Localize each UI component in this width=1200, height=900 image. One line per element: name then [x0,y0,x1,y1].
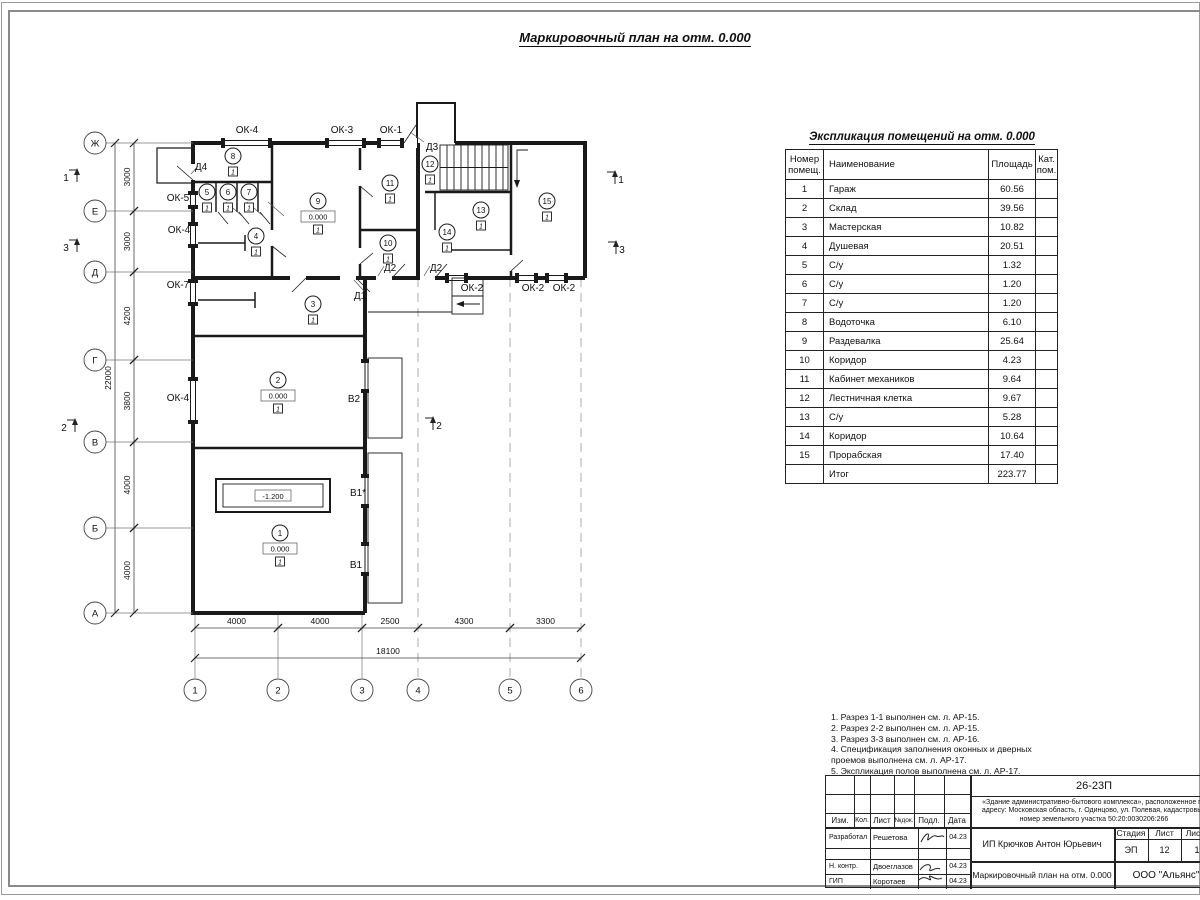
general-notes: 1. Разрез 1-1 выполнен см. л. АР-15.2. Р… [831,712,1032,777]
schedule-cell [1036,294,1058,313]
opening-label: В1* [350,488,366,499]
schedule-cell: 1 [786,180,824,199]
schedule-cell: 14 [786,427,824,446]
note-line: проемов выполнена см. л. АР-17. [831,755,1032,766]
schedule-row: 4Душевая20.51 [786,237,1058,256]
axis-label: В [92,438,98,449]
col-header-num: Номер помещ. [786,150,824,180]
room-number: 6 [226,188,231,197]
room-number: 4 [254,232,259,241]
schedule-row: 5С/у1.32 [786,256,1058,275]
room-number: 3 [311,300,316,309]
dimension-value: 2500 [381,616,400,626]
tb-role-ncontrol: Н. контр. [826,859,870,874]
overall-dimension: 18100 [376,646,400,656]
col-header-area: Площадь [989,150,1036,180]
schedule-cell [1036,256,1058,275]
elevation-value: 0.000 [271,545,290,554]
schedule-cell: 9.67 [989,389,1036,408]
dimension-value: 4000 [311,616,330,626]
schedule-cell: 6 [786,275,824,294]
tb-stage-header: Стадия [1114,827,1148,839]
schedule-cell: 10.64 [989,427,1036,446]
room-number: 15 [543,197,552,206]
room-number: 12 [426,160,435,169]
opening-label: Д4 [195,162,208,173]
floor-plan: ОК-4ОК-3ОК-1Д3Д4ОК-5ОК-4ОК-7ОК-4Д2Д2Д1ОК… [20,80,680,725]
room-number: 5 [205,188,210,197]
note-line: 3. Разрез 3-3 выполнен см. л. АР-16. [831,734,1032,745]
elevation-value: 0.000 [269,392,288,401]
schedule-row: 9Раздевалка25.64 [786,332,1058,351]
floor-type-number: 1 [445,246,449,253]
schedule-row: 13С/у5.28 [786,408,1058,427]
axis-label: Г [92,356,97,367]
schedule-cell [1036,237,1058,256]
opening-label: ОК-3 [331,125,354,136]
section-arrowhead [74,168,80,175]
dimension-value: 3800 [122,391,132,410]
schedule-cell: 6.10 [989,313,1036,332]
schedule-cell: С/у [824,408,989,427]
schedule-cell [1036,351,1058,370]
porch-d4 [157,148,193,183]
section-number: 2 [61,423,67,434]
floor-type-number: 1 [247,206,251,213]
schedule-cell: Итог [824,465,989,484]
tb-company: ООО "Альянс" [1114,861,1200,889]
room-number: 7 [247,188,252,197]
schedule-cell [1036,275,1058,294]
schedule-cell [1036,332,1058,351]
schedule-cell: 10 [786,351,824,370]
opening-label: Д2 [384,263,397,274]
tb-doc-code: 26-23П [970,776,1200,796]
pit-elevation-value: -1.200 [262,492,283,501]
opening-label: ОК-2 [522,283,545,294]
dimension-value: 4300 [455,616,474,626]
drawing-title: Маркировочный план на отм. 0.000 [470,30,800,45]
section-number: 1 [63,173,69,184]
schedule-row: 12Лестничная клетка9.67 [786,389,1058,408]
schedule-row: 2Склад39.56 [786,199,1058,218]
opening-label: В1 [350,560,363,571]
opening-label: ОК-4 [167,393,190,404]
floor-type-number: 1 [276,407,280,414]
schedule-cell [1036,199,1058,218]
opening-label: ОК-4 [168,225,191,236]
opening-label: В2 [348,394,361,405]
floor-type-number: 1 [278,560,282,567]
schedule-cell: Склад [824,199,989,218]
section-arrowhead [430,416,436,423]
room-number: 1 [278,529,283,538]
schedule-cell: 8 [786,313,824,332]
tb-client: ИП Крючков Антон Юрьевич [970,827,1114,861]
schedule-cell: 1.32 [989,256,1036,275]
floor-type-number: 1 [231,170,235,177]
dimension-value: 4000 [122,475,132,494]
floor-type-number: 1 [479,224,483,231]
schedule-cell: Коридор [824,351,989,370]
schedule-cell: 9.64 [989,370,1036,389]
schedule-cell: С/у [824,275,989,294]
schedule-cell [1036,465,1058,484]
floor-type-number: 1 [388,197,392,204]
title-block: Изм. Кол. Лист №док. Подл. Дата Разработ… [825,775,1200,888]
note-line: 2. Разрез 2-2 выполнен см. л. АР-15. [831,723,1032,734]
schedule-cell: 5.28 [989,408,1036,427]
schedule-cell: Водоточка [824,313,989,332]
schedule-cell: 9 [786,332,824,351]
schedule-cell: Гараж [824,180,989,199]
section-arrowhead [613,240,619,247]
tb-name-developer: Решетова [870,827,918,848]
tb-sheet-header: Лист [1148,827,1181,839]
tb-date-developer: 04.23 [946,827,970,848]
schedule-cell [1036,427,1058,446]
col-header-name: Наименование [824,150,989,180]
signature-developer [918,828,946,848]
schedule-cell: 2 [786,199,824,218]
dimension-value: 4000 [122,561,132,580]
tb-role-gip: ГИП [826,874,870,889]
elevation-value: 0.000 [309,213,328,222]
schedule-cell: 25.64 [989,332,1036,351]
schedule-cell [1036,408,1058,427]
schedule-cell: 1.20 [989,294,1036,313]
tb-name-ncontrol: Двоеглазов [870,859,918,874]
tb-col-kol: Кол. [854,813,870,827]
room-number: 11 [386,179,395,188]
axis-label: Е [92,207,98,218]
schedule-cell: 10.82 [989,218,1036,237]
schedule-cell [1036,370,1058,389]
room-number: 14 [443,228,452,237]
section-number: 2 [436,421,442,432]
schedule-cell: 7 [786,294,824,313]
note-line: 4. Спецификация заполнения оконных и две… [831,744,1032,755]
schedule-cell [1036,389,1058,408]
opening-label: ОК-7 [167,280,190,291]
section-number: 1 [618,175,624,186]
schedule-title: Экспликация помещений на отм. 0.000 [785,131,1059,143]
axis-label: А [92,609,99,620]
tb-sheets-value: 17 [1181,839,1200,861]
floor-type-number: 1 [205,206,209,213]
schedule-cell [1036,218,1058,237]
opening-label: Д2 [430,263,443,274]
schedule-cell [1036,180,1058,199]
section-number: 3 [63,243,69,254]
floor-type-number: 1 [386,257,390,264]
axis-label: 4 [415,686,420,697]
schedule-cell: Лестничная клетка [824,389,989,408]
tb-date-gip: 04.23 [946,874,970,889]
schedule-cell: Душевая [824,237,989,256]
section-arrowhead [72,418,78,425]
room-schedule: Экспликация помещений на отм. 0.000 Номе… [785,131,1059,484]
schedule-cell: С/у [824,256,989,275]
room-number: 13 [477,206,486,215]
tb-sheet-value: 12 [1148,839,1181,861]
dimension-value: 3000 [122,232,132,251]
vestibule [417,103,455,143]
tb-stage-value: ЭП [1114,839,1148,861]
tb-role-developer: Разработал [826,827,870,848]
schedule-cell [786,465,824,484]
tb-col-podl: Подл. [914,813,944,827]
drawing-sheet: Маркировочный план на отм. 0.000 [0,0,1200,900]
schedule-cell: Раздевалка [824,332,989,351]
schedule-row: Итог223.77 [786,465,1058,484]
floor-type-number: 1 [428,178,432,185]
signature-ncontrol [916,860,946,888]
axis-label: Д [92,268,99,279]
floor-type-number: 1 [311,318,315,325]
room-number: 9 [316,197,321,206]
schedule-cell: 39.56 [989,199,1036,218]
tb-project-description: «Здание административно-бытового комплек… [970,796,1200,827]
dimension-value: 3300 [536,616,555,626]
tb-col-doc: №док. [894,813,914,827]
schedule-row: 3Мастерская10.82 [786,218,1058,237]
room-number: 10 [384,239,393,248]
schedule-cell: Коридор [824,427,989,446]
opening-label: ОК-2 [461,283,484,294]
section-arrowhead [612,170,618,177]
dimension-value: 4200 [122,306,132,325]
schedule-cell: 13 [786,408,824,427]
schedule-cell: 3 [786,218,824,237]
floor-type-number: 1 [316,228,320,235]
schedule-cell [1036,446,1058,465]
section-number: 3 [619,245,625,256]
tb-col-list: Лист [870,813,894,827]
floor-type-number: 1 [254,250,258,257]
opening-label: Д1 [354,291,367,302]
schedule-cell: С/у [824,294,989,313]
schedule-cell: 20.51 [989,237,1036,256]
tb-sheet-name: Маркировочный план на отм. 0.000 [970,861,1114,889]
schedule-row: 15Прорабская17.40 [786,446,1058,465]
schedule-cell: 60.56 [989,180,1036,199]
schedule-cell: 11 [786,370,824,389]
schedule-cell: 5 [786,256,824,275]
schedule-cell: Кабинет механиков [824,370,989,389]
floor-type-number: 1 [545,215,549,222]
stairs [440,145,528,190]
schedule-row: 14Коридор10.64 [786,427,1058,446]
schedule-row: 1Гараж60.56 [786,180,1058,199]
schedule-cell: 12 [786,389,824,408]
dimension-value: 4000 [227,616,246,626]
opening-label: ОК-2 [553,283,576,294]
schedule-table: Номер помещ. Наименование Площадь Кат. п… [785,149,1058,484]
schedule-row: 8Водоточка6.10 [786,313,1058,332]
floor-type-number: 1 [226,206,230,213]
axis-label: 1 [192,686,197,697]
schedule-row: 7С/у1.20 [786,294,1058,313]
room-number: 8 [231,152,236,161]
opening-label: ОК-5 [167,193,190,204]
tb-date-ncontrol: 04.23 [946,859,970,874]
axis-label: 5 [507,686,512,697]
col-header-cat: Кат. пом. [1036,150,1058,180]
section-arrowhead [74,238,80,245]
note-line: 1. Разрез 1-1 выполнен см. л. АР-15. [831,712,1032,723]
tb-col-data: Дата [944,813,970,827]
schedule-row: 6С/у1.20 [786,275,1058,294]
tb-sheets-header: Листов [1181,827,1200,839]
schedule-row: 10Коридор4.23 [786,351,1058,370]
axis-label: Ж [91,139,100,150]
schedule-cell: 15 [786,446,824,465]
schedule-cell: Прорабская [824,446,989,465]
schedule-cell: Мастерская [824,218,989,237]
schedule-cell [1036,313,1058,332]
schedule-row: 11Кабинет механиков9.64 [786,370,1058,389]
schedule-cell: 1.20 [989,275,1036,294]
schedule-cell: 4.23 [989,351,1036,370]
schedule-cell: 4 [786,237,824,256]
opening-label: Д3 [426,142,439,153]
axis-label: 6 [578,686,583,697]
room-number: 2 [276,376,281,385]
opening-label: ОК-1 [380,125,403,136]
axis-label: 3 [359,686,364,697]
axis-label: 2 [275,686,280,697]
tb-col-izm: Изм. [826,813,854,827]
tb-name-gip: Коротаев [870,874,918,889]
axis-label: Б [92,524,98,535]
opening-label: ОК-4 [236,125,259,136]
schedule-cell: 17.40 [989,446,1036,465]
schedule-cell: 223.77 [989,465,1036,484]
dimension-value: 3000 [122,167,132,186]
overall-dimension: 22000 [103,366,113,390]
